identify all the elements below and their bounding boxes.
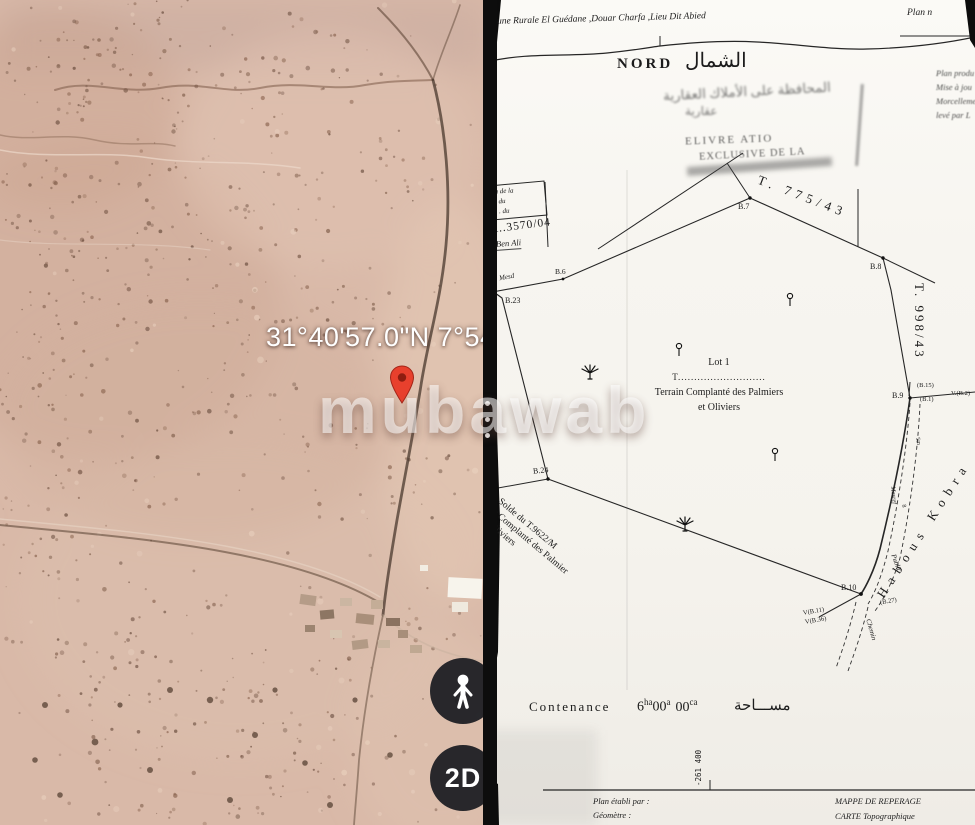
terrain-patches: [0, 0, 487, 825]
point-b7: B.7: [738, 202, 749, 211]
point-b8: B.8: [870, 262, 881, 271]
pane-divider[interactable]: [483, 0, 497, 825]
pegman-button[interactable]: [430, 658, 487, 724]
contenance-value: 6ha00a00ca: [637, 697, 698, 716]
divider-handle-dot[interactable]: [485, 417, 490, 422]
point-b6: B.6: [555, 267, 566, 276]
owner-name: Ben Ali: [496, 237, 522, 251]
footer-credits: Plan établi par : Géomètre : Dessinateur…: [593, 794, 685, 825]
margin-note: Plan produ: [936, 68, 974, 78]
divider-handle-dot[interactable]: [485, 433, 490, 438]
point-b1: (B.1): [920, 396, 934, 403]
cadastral-plan-pane[interactable]: une Rurale El Guédane ,Douar Charfa ,Lie…: [487, 0, 975, 825]
grid-ordinate-label: -261 400: [694, 750, 703, 786]
north-label-arabic: الشمال: [685, 48, 747, 73]
plan-number-label: Plan n: [907, 8, 932, 18]
point-vb2: V.(B.2): [951, 390, 970, 397]
title-t998: T. 998/43: [911, 283, 927, 360]
contenance-arabic: مســـاحة: [734, 696, 790, 715]
map-pin-icon[interactable]: [389, 365, 415, 405]
point-b9: B.9: [892, 391, 903, 400]
point-b15: (B.15): [917, 382, 934, 389]
pegman-icon: [446, 672, 480, 710]
mode-2d-button[interactable]: 2D: [430, 745, 487, 811]
margin-note: Mise à jou: [936, 82, 972, 92]
coordinates-label: 31°40'57.0"N 7°54'48: [266, 322, 487, 353]
reference-box: n de la. du. . du: [494, 186, 515, 217]
satellite-imagery: [0, 0, 487, 825]
point-b23: B.23: [505, 296, 520, 305]
stamp-arabic-line: عقارية: [685, 104, 717, 119]
divider-handle-dot[interactable]: [485, 401, 490, 406]
screenshot-stage: 31°40'57.0"N 7°54'48 2D: [0, 0, 975, 825]
point-b24: B.24: [533, 465, 549, 476]
point-b10: B.10: [841, 583, 856, 592]
margin-note: levé par L: [936, 110, 970, 120]
satellite-map-pane[interactable]: 31°40'57.0"N 7°54'48 2D: [0, 0, 487, 825]
lot-description: Lot 1 T........................... Terra…: [639, 355, 799, 415]
margin-note: Morcelleme: [936, 96, 975, 106]
contenance-label: Contenance: [529, 699, 610, 715]
footer-reference-map: MAPPE DE REPERAGE CARTE Topographique: [835, 794, 921, 824]
road-width-5m: 5m: [914, 437, 921, 446]
mode-2d-label: 2D: [445, 763, 482, 794]
north-label: NORD: [617, 56, 673, 73]
